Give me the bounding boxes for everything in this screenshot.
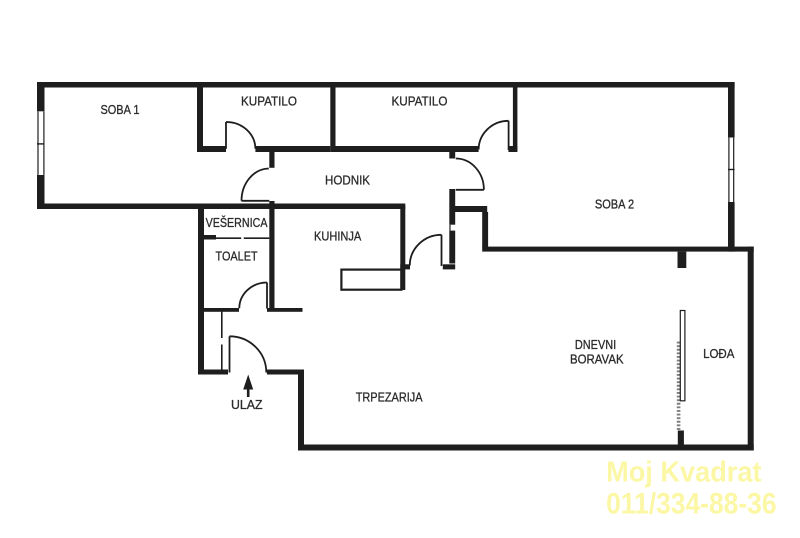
svg-text:Moj Kvadrat: Moj Kvadrat [606,457,762,489]
svg-text:ULAZ: ULAZ [231,397,263,412]
svg-text:TOALET: TOALET [216,248,258,263]
svg-text:DNEVNI: DNEVNI [575,337,616,352]
svg-text:VEŠERNICA: VEŠERNICA [206,215,268,230]
svg-text:LOĐA: LOĐA [703,346,735,361]
svg-text:BORAVAK: BORAVAK [570,352,624,367]
svg-text:SOBA 2: SOBA 2 [595,197,634,212]
svg-text:KUHINJA: KUHINJA [314,229,362,244]
svg-text:SOBA 1: SOBA 1 [101,102,140,117]
svg-text:KUPATILO: KUPATILO [392,94,448,109]
svg-text:HODNIK: HODNIK [325,172,370,187]
svg-text:KUPATILO: KUPATILO [241,94,297,109]
svg-text:TRPEZARIJA: TRPEZARIJA [356,390,423,405]
svg-text:011/334-88-36: 011/334-88-36 [606,487,777,520]
